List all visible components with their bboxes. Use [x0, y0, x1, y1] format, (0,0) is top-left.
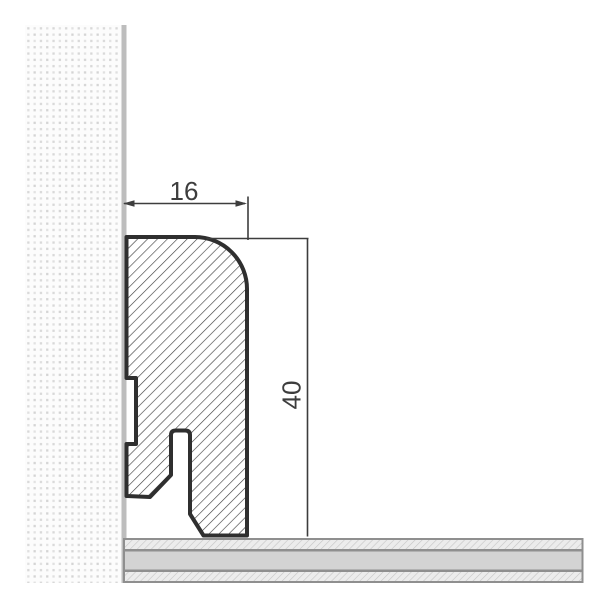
floor-panel: [124, 551, 583, 571]
skirting-cross-section-drawing: 16 40: [0, 0, 604, 604]
floor-bottom-underlay: [124, 571, 583, 582]
wall-stipple-texture: [25, 25, 122, 583]
wall-section: [25, 25, 127, 583]
floor-assembly: [124, 539, 583, 582]
width-dimension-label: 16: [170, 176, 199, 206]
floor-top-underlay: [124, 539, 583, 550]
skirting-profile: [127, 237, 248, 536]
height-dimension-label: 40: [277, 381, 307, 410]
technical-drawing-canvas: 16 40: [0, 0, 604, 604]
width-arrow-right: [236, 200, 248, 206]
